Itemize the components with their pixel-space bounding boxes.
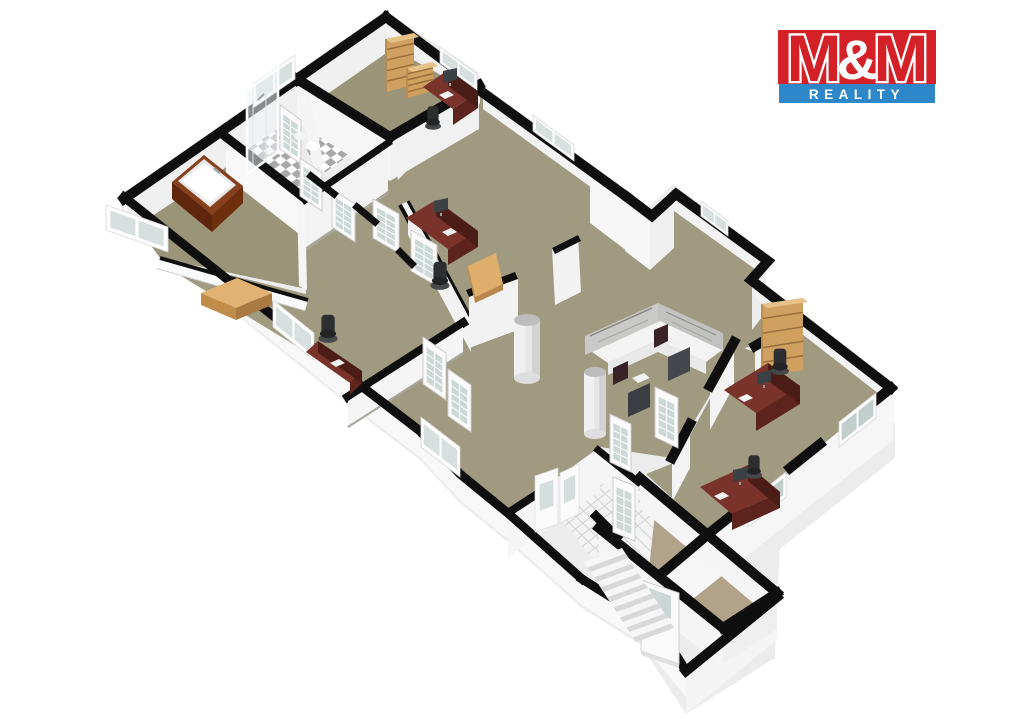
- svg-text:&: &: [837, 28, 877, 91]
- svg-text:REALITY: REALITY: [809, 87, 905, 102]
- svg-text:M: M: [787, 21, 842, 95]
- svg-text:M: M: [874, 21, 929, 95]
